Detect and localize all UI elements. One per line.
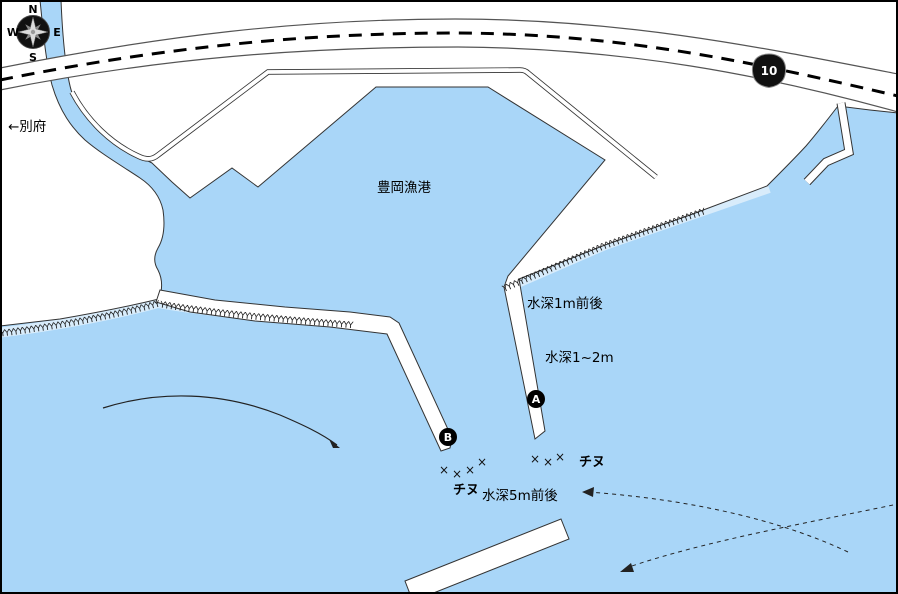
- to-beppu-label: ←別府: [8, 119, 46, 135]
- fish-label-left: チヌ: [453, 483, 479, 498]
- port-name-label: 豊岡漁港: [377, 180, 431, 196]
- fishing-spot-x: ×: [452, 467, 462, 481]
- compass-west-label: W: [7, 26, 19, 39]
- marker-a: A: [527, 390, 545, 408]
- compass-south-label: S: [29, 51, 37, 64]
- depth-1-2m-label: 水深1~2m: [545, 350, 614, 366]
- fishing-spot-x: ×: [543, 455, 553, 469]
- depth-5m-label: 水深5m前後: [482, 487, 558, 504]
- fishing-spot-x: ×: [465, 463, 475, 477]
- compass-east-label: E: [53, 26, 61, 39]
- marker-b: B: [439, 428, 457, 446]
- fishing-spot-x: ×: [555, 450, 565, 464]
- fishing-spot-x: ×: [439, 463, 449, 477]
- fishing-spot-x: ×: [477, 455, 487, 469]
- fishing-spot-x: ×: [530, 452, 540, 466]
- svg-text:B: B: [444, 431, 452, 444]
- fishing-port-map: YYYYYYYYYYYYYYYYYYYYYYYYYYYYYYYYYYYYYYYY…: [0, 0, 898, 594]
- fish-label-right: チヌ: [579, 455, 605, 470]
- svg-text:A: A: [532, 393, 541, 406]
- route-number: 10: [761, 64, 778, 78]
- depth-1m-label: 水深1m前後: [527, 295, 603, 312]
- compass-north-label: N: [28, 3, 37, 16]
- route-badge: 10: [752, 54, 785, 88]
